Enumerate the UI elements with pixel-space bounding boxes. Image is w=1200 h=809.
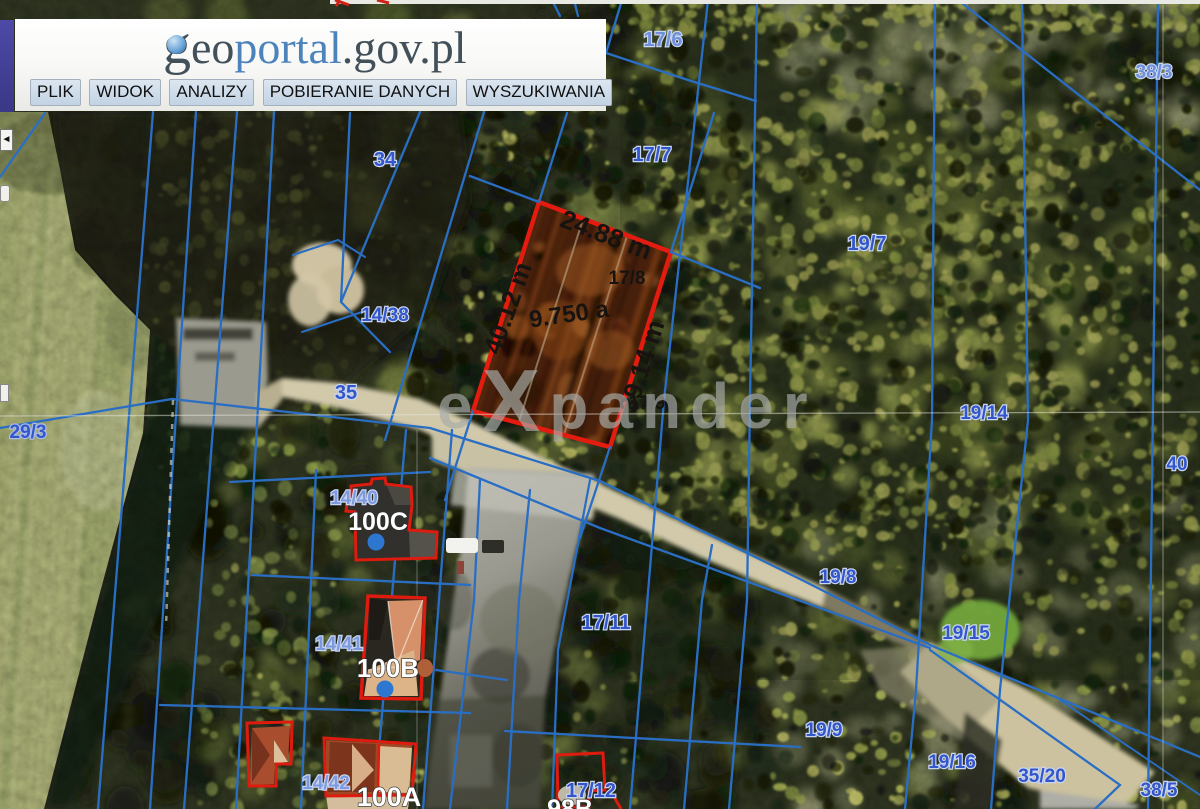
svg-text:100C: 100C [348, 508, 408, 536]
svg-text:17/8: 17/8 [609, 268, 646, 289]
svg-text:19/16: 19/16 [928, 752, 976, 773]
svg-text:29/3: 29/3 [10, 422, 47, 443]
svg-text:14/38: 14/38 [361, 305, 409, 326]
svg-text:19/9: 19/9 [806, 720, 843, 741]
svg-text:40: 40 [1166, 454, 1187, 475]
svg-text:19/7: 19/7 [848, 233, 887, 255]
svg-text:100A: 100A [357, 782, 422, 809]
svg-text:19/15: 19/15 [942, 623, 990, 644]
svg-text:17/7: 17/7 [633, 144, 672, 166]
svg-text:14/42: 14/42 [302, 773, 350, 794]
svg-text:35: 35 [335, 382, 357, 404]
svg-text:17/6: 17/6 [644, 29, 683, 51]
svg-text:35/20: 35/20 [1018, 766, 1066, 787]
svg-text:14/41: 14/41 [315, 634, 363, 655]
svg-text:98B: 98B [547, 795, 593, 809]
svg-text:100B: 100B [357, 653, 419, 683]
svg-text:34: 34 [374, 149, 397, 171]
svg-text:19/14: 19/14 [960, 403, 1008, 424]
svg-text:14/40: 14/40 [330, 488, 378, 509]
svg-text:38/3: 38/3 [1136, 62, 1173, 83]
svg-text:38/5: 38/5 [1141, 780, 1178, 801]
svg-text:19/8: 19/8 [820, 567, 857, 588]
svg-text:17/11: 17/11 [582, 612, 631, 634]
